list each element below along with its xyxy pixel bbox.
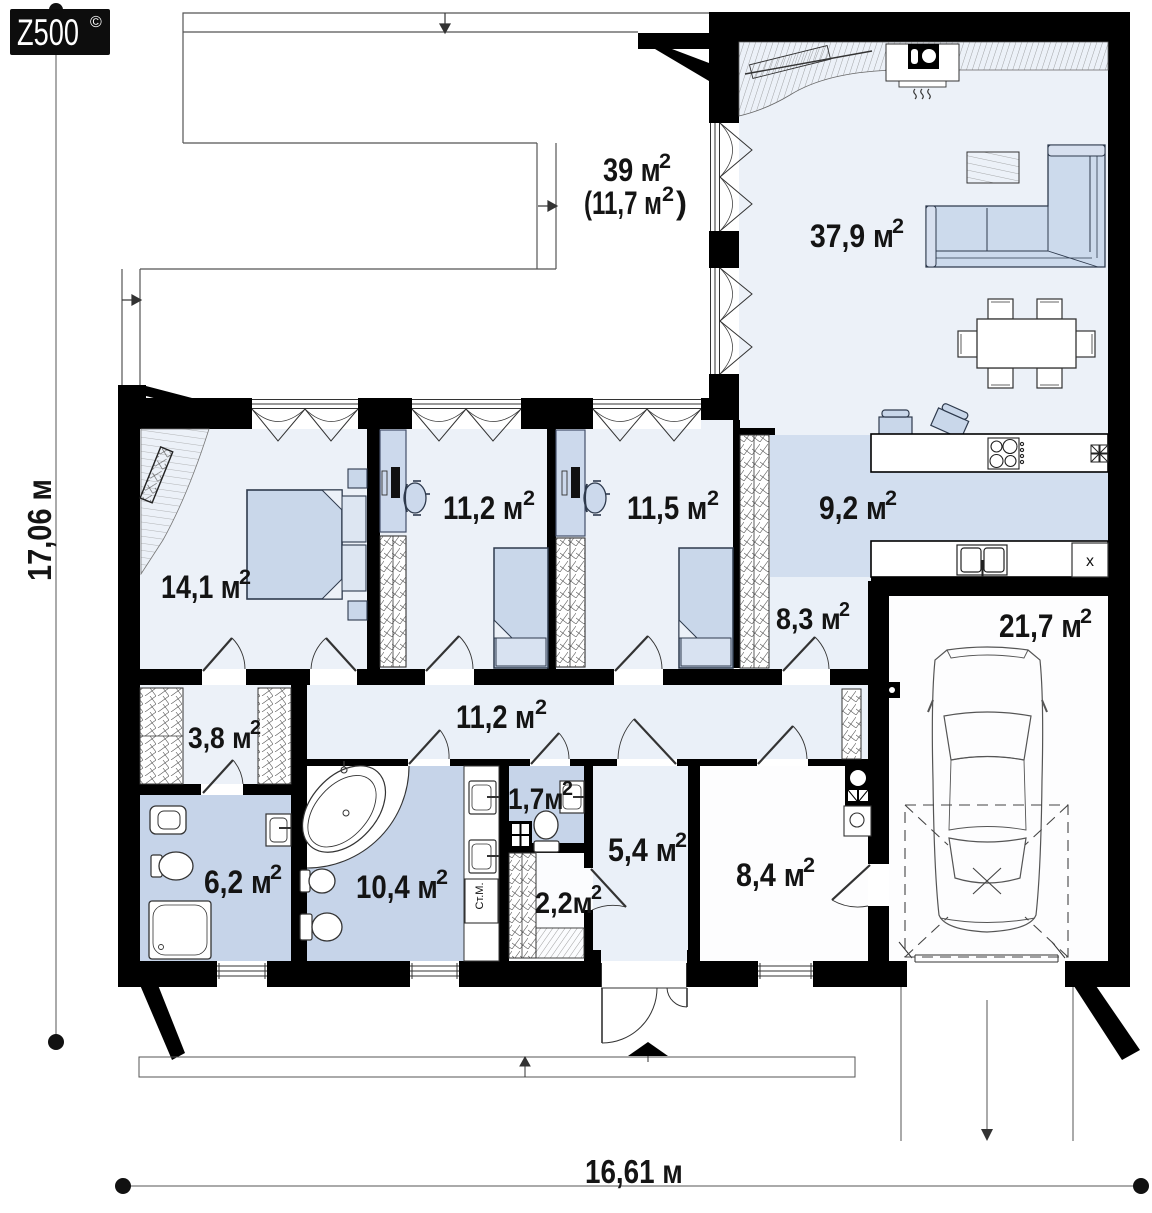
svg-text:6,2 м: 6,2 м xyxy=(204,865,272,900)
svg-text:21,7 м: 21,7 м xyxy=(999,609,1082,644)
svg-text:2: 2 xyxy=(591,882,602,904)
svg-text:16,61 м: 16,61 м xyxy=(585,1154,683,1191)
svg-text:2: 2 xyxy=(659,149,671,173)
svg-text:2: 2 xyxy=(662,182,674,206)
svg-text:2: 2 xyxy=(675,828,687,852)
svg-text:1,7м: 1,7м xyxy=(508,782,564,815)
svg-text:2: 2 xyxy=(885,486,897,510)
svg-text:14,1 м: 14,1 м xyxy=(161,570,241,606)
svg-text:2: 2 xyxy=(535,695,547,719)
svg-text:2: 2 xyxy=(436,865,448,889)
svg-text:11,5 м: 11,5 м xyxy=(627,491,707,526)
svg-text:11,2 м: 11,2 м xyxy=(443,491,523,526)
svg-text:©: © xyxy=(90,14,102,31)
svg-text:Ст.М.: Ст.М. xyxy=(474,882,486,909)
svg-text:2: 2 xyxy=(250,717,261,739)
svg-text:2: 2 xyxy=(239,565,251,589)
svg-text:): ) xyxy=(676,185,687,220)
svg-text:2,2м: 2,2м xyxy=(535,887,593,921)
svg-text:39 м: 39 м xyxy=(603,153,661,189)
svg-text:2: 2 xyxy=(270,860,282,884)
svg-text:11,2 м: 11,2 м xyxy=(456,700,535,736)
svg-text:2: 2 xyxy=(562,778,573,800)
svg-text:2: 2 xyxy=(839,599,850,621)
svg-text:10,4 м: 10,4 м xyxy=(356,870,438,905)
svg-text:5,4 м: 5,4 м xyxy=(608,834,677,869)
svg-text:8,3 м: 8,3 м xyxy=(776,603,841,637)
svg-text:2: 2 xyxy=(707,486,719,510)
svg-text:3,8 м: 3,8 м xyxy=(188,720,252,754)
svg-text:2: 2 xyxy=(523,486,535,510)
svg-text:2: 2 xyxy=(892,214,904,238)
svg-text:x: x xyxy=(1086,553,1094,570)
svg-text:2: 2 xyxy=(1080,604,1092,628)
svg-text:9,2 м: 9,2 м xyxy=(819,491,887,526)
svg-text:(11,7 м: (11,7 м xyxy=(584,185,662,221)
svg-text:8,4 м: 8,4 м xyxy=(736,859,805,894)
svg-text:37,9 м: 37,9 м xyxy=(810,219,894,254)
svg-text:2: 2 xyxy=(803,853,815,877)
svg-text:17,06 м: 17,06 м xyxy=(21,479,58,581)
svg-text:Z500: Z500 xyxy=(17,12,79,53)
